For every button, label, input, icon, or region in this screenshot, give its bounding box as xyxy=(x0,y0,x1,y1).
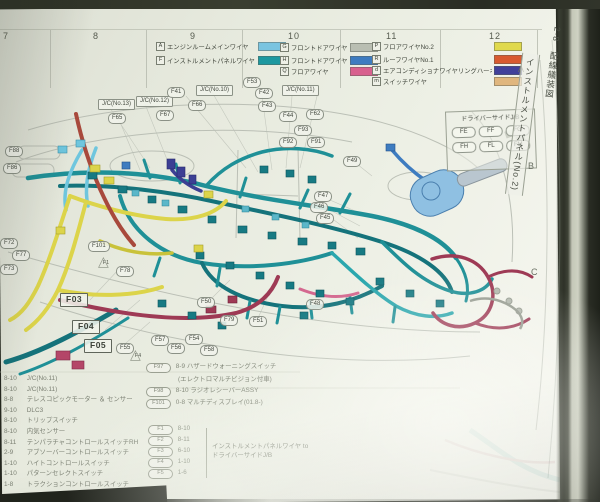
component-name: J/C(No.11) xyxy=(27,375,57,382)
table-row: F3 6-10 xyxy=(148,446,190,457)
table-row: 1-10 パターンセレクトスイッチ xyxy=(4,469,138,480)
component-name: アブソーバーコントロールスイッチ xyxy=(27,449,129,456)
book-page-edges xyxy=(556,0,600,502)
grid-ref: 8-10 xyxy=(176,387,189,394)
component-name: トリップスイッチ xyxy=(27,417,78,424)
grid-ref: 0-8 xyxy=(176,399,185,406)
connector-pill: F4 xyxy=(148,458,173,468)
photo-top-edge xyxy=(0,0,600,9)
connector-label: F91 xyxy=(307,137,325,148)
table-row: F98 8-10 ラジオレシーバーASSY xyxy=(146,385,276,398)
table-row: 1-10 ハイトコントロールスイッチ xyxy=(4,459,138,470)
connector-label: F79 xyxy=(220,315,238,326)
table-row: 8-8 テレスコピックモーター ＆ センサー xyxy=(4,395,138,406)
table-row: 8-10 J/C(No.11) xyxy=(4,385,138,396)
connector-label: F47 xyxy=(314,191,332,202)
grid-ref: 8-9 xyxy=(176,363,185,370)
table-row: 8-10 J/C(No.11) xyxy=(4,374,138,385)
connector-label: F42 xyxy=(255,88,273,99)
component-name: パターンセレクトスイッチ xyxy=(27,470,103,477)
connector-pill: F1 xyxy=(148,425,173,435)
connector-label: F49 xyxy=(343,156,361,167)
table-row: F97 8-9 ハザードウォーニングスイッチ xyxy=(146,361,276,374)
manual-photo: 789101112 A エンジンルームメインワイヤ F インストルメントパネルワ… xyxy=(0,0,600,502)
table-note: (エレクトロマルチビジョン付車) xyxy=(178,374,276,385)
group-note-line: ドライバーサイドJ/B xyxy=(212,452,308,461)
connector-label: F78 xyxy=(116,266,134,277)
connector-label: F101 xyxy=(88,241,110,252)
grid-ref: 1-10 xyxy=(4,469,25,480)
connector-label: F51 xyxy=(249,316,267,327)
group-note: インストルメントパネルワイヤ to ドライバーサイドJ/B xyxy=(212,443,308,460)
connector-pill: F101 xyxy=(146,399,171,409)
connector-label: F43 xyxy=(258,101,276,112)
connector-label: J/C(No.12) xyxy=(136,96,173,107)
connector-pill: F5 xyxy=(148,469,173,479)
connector-group: F1 8-10 F2 8-11 F3 6-10 F4 1-10 F5 1-6 xyxy=(148,424,190,479)
connector-label: F73 xyxy=(0,264,18,275)
connector-label: F41 xyxy=(167,87,185,98)
connector-label: F67 xyxy=(156,110,174,121)
connector-pill: F3 xyxy=(148,447,173,457)
grid-ref: 1-6 xyxy=(178,469,187,476)
table-row: 9-10 DLC3 xyxy=(4,406,138,417)
grid-ref: 8-8 xyxy=(4,395,25,406)
connector-pill: F97 xyxy=(146,363,171,373)
connector-label: F56 xyxy=(167,343,185,354)
component-name: ハイトコントロールスイッチ xyxy=(27,460,110,467)
table-row: F2 8-11 xyxy=(148,435,190,446)
connector-pill: F2 xyxy=(148,436,173,446)
grid-ref: 8-10 xyxy=(4,374,25,385)
grid-ref: 8-11 xyxy=(178,436,190,443)
table-row: F4 1-10 xyxy=(148,457,190,468)
component-name: マルチディスプレイ(01.8-) xyxy=(187,399,263,406)
table-row: F101 0-8 マルチディスプレイ(01.8-) xyxy=(146,397,276,410)
group-bracket xyxy=(206,428,207,478)
connector-label: F72 xyxy=(0,238,18,249)
connector-label: F65 xyxy=(108,113,126,124)
connector-label: J/C(No.11) xyxy=(282,85,319,96)
connector-label: F86 xyxy=(3,163,21,174)
connector-label: F48 xyxy=(306,299,324,310)
connector-label: F50 xyxy=(197,297,215,308)
grid-ref: 8-10 xyxy=(4,416,25,427)
connector-label: F62 xyxy=(306,109,324,120)
connector-label: F57 xyxy=(151,335,169,346)
connector-label: J/C(No.13) xyxy=(98,99,135,110)
component-name: 内気センサー xyxy=(27,428,65,435)
component-name: DLC3 xyxy=(27,407,43,414)
component-name: テンパラチャコントロールスイッチRH xyxy=(27,439,138,446)
connector-label: F04 xyxy=(72,320,100,334)
component-name: ラジオレシーバーASSY xyxy=(190,387,258,394)
connector-label: F77 xyxy=(12,250,30,261)
grid-ref: 1-10 xyxy=(178,458,190,465)
connector-label: F92 xyxy=(279,137,297,148)
connector-pill: F98 xyxy=(146,387,171,397)
connector-label: F44 xyxy=(279,111,297,122)
table-row: 2-9 アブソーバーコントロールスイッチ xyxy=(4,448,138,459)
table-row: F5 1-6 xyxy=(148,468,190,479)
table-row: 8-10 内気センサー xyxy=(4,427,138,438)
connector-label: F53 xyxy=(243,77,261,88)
group-note-line: インストルメントパネルワイヤ to xyxy=(212,443,308,452)
connector-label: F93 xyxy=(294,125,312,136)
table-row: F1 8-10 xyxy=(148,424,190,435)
connector-label: F05 xyxy=(84,339,112,353)
grid-ref: 8-11 xyxy=(4,438,25,449)
grid-ref: 2-9 xyxy=(4,448,25,459)
grid-ref: 1-10 xyxy=(4,459,25,470)
component-name: ハザードウォーニングスイッチ xyxy=(187,363,276,370)
connector-label: F1 xyxy=(97,254,115,270)
table-row: 8-10 トリップスイッチ xyxy=(4,416,138,427)
connector-label: J/C(No.10) xyxy=(196,85,233,96)
connector-label: F66 xyxy=(188,100,206,111)
grid-ref: 8-10 xyxy=(4,427,25,438)
component-table-left: 8-10 J/C(No.11) 8-10 J/C(No.11) 8-8 テレスコ… xyxy=(4,374,138,491)
connector-label: F45 xyxy=(316,213,334,224)
connector-label: F4 xyxy=(129,347,147,363)
grid-ref: 6-10 xyxy=(178,447,190,454)
connector-label: F46 xyxy=(310,202,328,213)
component-name: J/C(No.11) xyxy=(27,386,57,393)
grid-ref: 8-10 xyxy=(178,425,190,432)
grid-ref: 8-10 xyxy=(4,385,25,396)
connector-label: F88 xyxy=(5,146,23,157)
connector-label: F58 xyxy=(200,345,218,356)
grid-ref: 1-8 xyxy=(4,480,25,491)
component-name: テレスコピックモーター ＆ センサー xyxy=(27,396,133,403)
connector-label: F54 xyxy=(185,334,203,345)
component-name: トラクションコントロールスイッチ xyxy=(27,481,129,488)
component-table-right: F97 8-9 ハザードウォーニングスイッチ (エレクトロマルチビジョン付車) … xyxy=(146,361,276,410)
table-row: 8-11 テンパラチャコントロールスイッチRH xyxy=(4,438,138,449)
connector-label: F03 xyxy=(60,293,88,307)
grid-ref: 9-10 xyxy=(4,406,25,417)
